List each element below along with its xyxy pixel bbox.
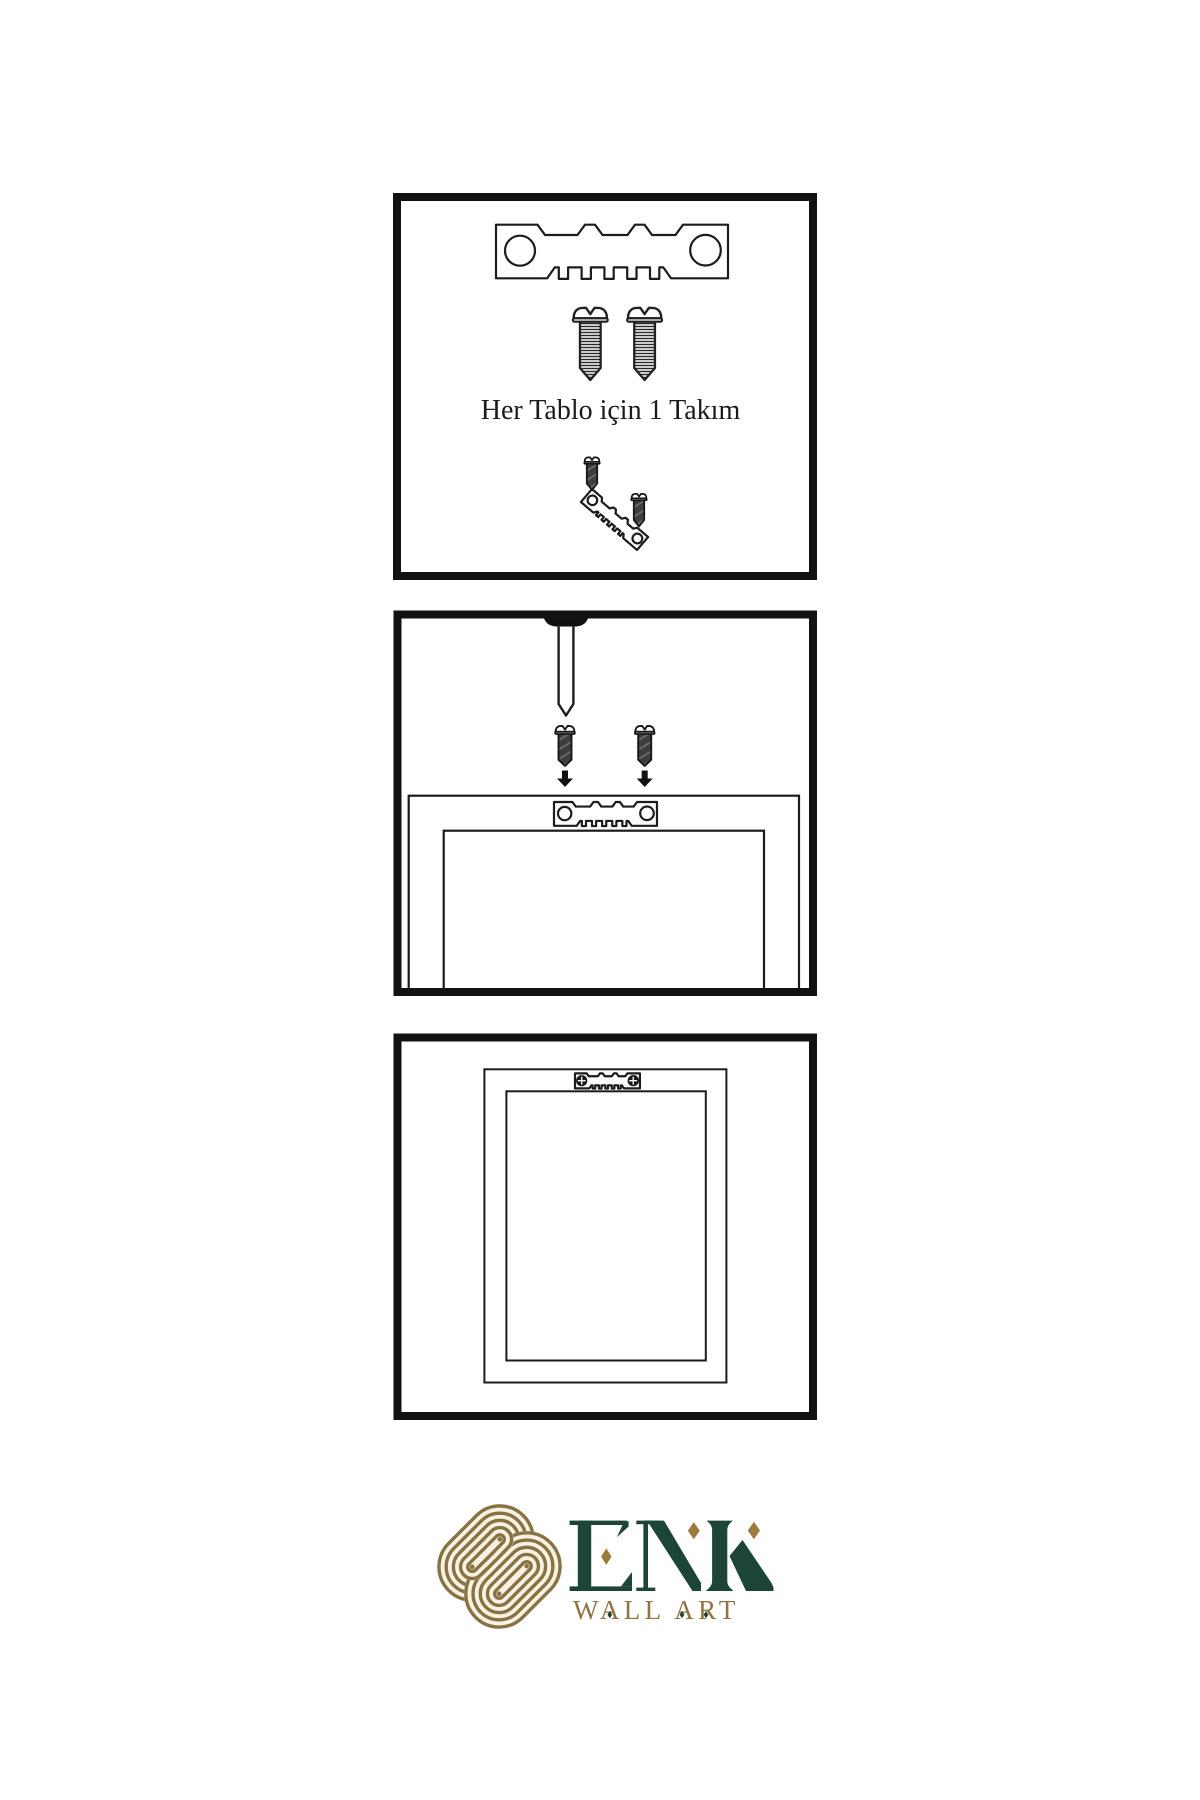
svg-text:Her Tablo için 1 Takım: Her Tablo için 1 Takım — [481, 395, 741, 426]
svg-text:WALL ART: WALL ART — [573, 1595, 740, 1625]
